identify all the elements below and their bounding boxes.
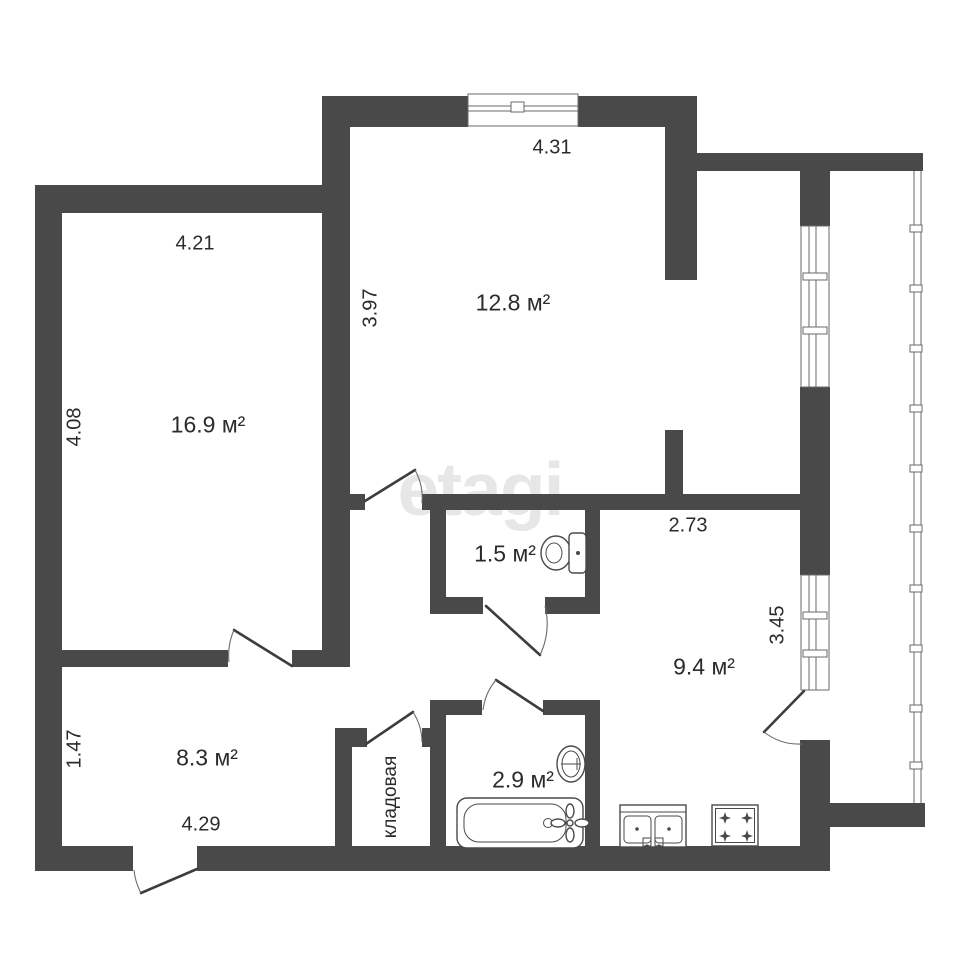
- living-room-height-dim: 4.08: [64, 408, 87, 447]
- bedroom-width-dim: 4.31: [533, 137, 572, 160]
- kitchen-sink-icon: [620, 805, 686, 849]
- storage-room-label: кладовая: [380, 756, 402, 839]
- living-room-width-dim: 4.21: [176, 233, 215, 256]
- window-kitchen-balcony: [801, 575, 829, 690]
- window-bedroom-balcony: [801, 226, 829, 387]
- door-wc: [486, 606, 547, 655]
- walls: [35, 96, 925, 871]
- bathtub-icon: [457, 798, 589, 848]
- floor-plan: etagi: [0, 0, 960, 960]
- hallway-height-dim: 1.47: [64, 730, 87, 769]
- door-balcony: [764, 691, 804, 744]
- door-storage: [366, 712, 422, 744]
- wc-area-label: 1.5 м²: [474, 541, 536, 568]
- hallway-area-label: 8.3 м²: [176, 745, 238, 772]
- floor-plan-drawing: [0, 0, 960, 960]
- door-corridor: [365, 470, 422, 503]
- door-entrance: [134, 869, 197, 893]
- bathroom-area-label: 2.9 м²: [492, 767, 554, 794]
- gas-stove-icon: [712, 805, 758, 846]
- door-bathroom: [483, 680, 543, 711]
- bedroom-area-label: 12.8 м²: [476, 290, 551, 317]
- hallway-width-dim: 4.29: [182, 814, 221, 837]
- kitchen-area-label: 9.4 м²: [673, 654, 735, 681]
- toilet-icon: [541, 533, 586, 573]
- kitchen-width-dim: 2.73: [669, 515, 708, 538]
- washbasin-icon: [557, 746, 585, 782]
- window-bedroom-top: [468, 94, 578, 126]
- bedroom-height-dim: 3.97: [360, 289, 383, 328]
- living-room-area-label: 16.9 м²: [171, 412, 246, 439]
- kitchen-height-dim: 3.45: [767, 606, 790, 645]
- balcony-glazing: [910, 171, 922, 803]
- door-living-room: [229, 630, 292, 666]
